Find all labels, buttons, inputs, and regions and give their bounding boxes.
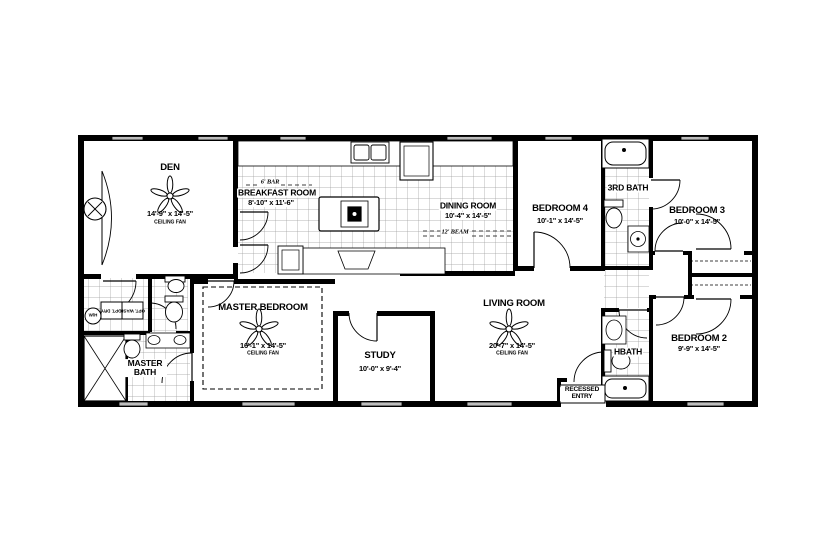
room-note-breakfast: 6' BAR — [260, 180, 281, 187]
room-label-living: LIVING ROOM — [483, 299, 545, 309]
room-label-dining: DINING ROOM — [439, 202, 497, 211]
pantry-cabinet — [278, 246, 303, 274]
room-label-master-bedroom: MASTER BEDROOM — [218, 303, 308, 313]
room-note-living: CEILING FAN — [496, 351, 528, 356]
den-wall-feature — [84, 171, 112, 265]
room-label-bedroom3: BEDROOM 3 — [669, 206, 725, 216]
bathtub — [602, 139, 649, 168]
annotation-water-heater: W/H — [89, 314, 98, 319]
room-dims-bedroom2: 9'-9" x 14'-5" — [678, 345, 720, 353]
room-label-breakfast: BREAKFAST ROOM — [237, 189, 317, 198]
floor-plan: DEN 14'-9" x 14'-5" CEILING FAN 6' BAR B… — [0, 0, 825, 550]
toilet — [124, 334, 140, 358]
room-dims-bedroom3: 10'-0" x 14'-5" — [674, 218, 720, 226]
room-note-master-bedroom: CEILING FAN — [247, 351, 279, 356]
kitchen-island — [319, 197, 379, 231]
kitchen-sink — [351, 142, 389, 163]
room-dims-master-bedroom: 16'-1" x 14'-5" — [240, 342, 286, 350]
room-label-hbath: HBATH — [613, 348, 643, 357]
floor-plan-drawing — [0, 0, 825, 550]
room-note-dining: 12' BEAM — [440, 230, 469, 237]
room-label-bedroom2: BEDROOM 2 — [671, 334, 727, 344]
room-label-study: STUDY — [364, 351, 395, 361]
bar-counter — [303, 248, 445, 274]
room-label-bedroom4: BEDROOM 4 — [532, 204, 588, 214]
bath-sink — [628, 226, 649, 252]
room-dims-bedroom4: 10'-1" x 14'-5" — [537, 217, 583, 225]
shower — [84, 336, 126, 401]
room-dims-dining: 10'-4" x 14'-5" — [444, 212, 492, 220]
room-dims-study: 10'-0" x 9'-4" — [359, 365, 401, 373]
hbath-sink — [602, 316, 626, 344]
room-label-third-bath: 3RD BATH — [607, 184, 650, 193]
room-dims-den: 14'-9" x 14'-5" — [147, 210, 193, 218]
room-label-den: DEN — [160, 163, 179, 173]
vanity-sinks — [146, 333, 190, 348]
refrigerator-inner — [404, 146, 429, 176]
room-label-entry: RECESSED ENTRY — [560, 387, 604, 401]
room-dims-breakfast: 8'-10" x 11'-6" — [247, 199, 295, 207]
annotation-opt-wash: OPT. WASH. — [119, 308, 145, 313]
room-dims-living: 20'-7" x 14'-5" — [489, 342, 535, 350]
room-label-master-bath: MASTER BATH — [123, 359, 167, 377]
light-symbol — [84, 198, 106, 220]
bathtub — [602, 376, 649, 401]
room-note-den: CEILING FAN — [154, 220, 186, 225]
